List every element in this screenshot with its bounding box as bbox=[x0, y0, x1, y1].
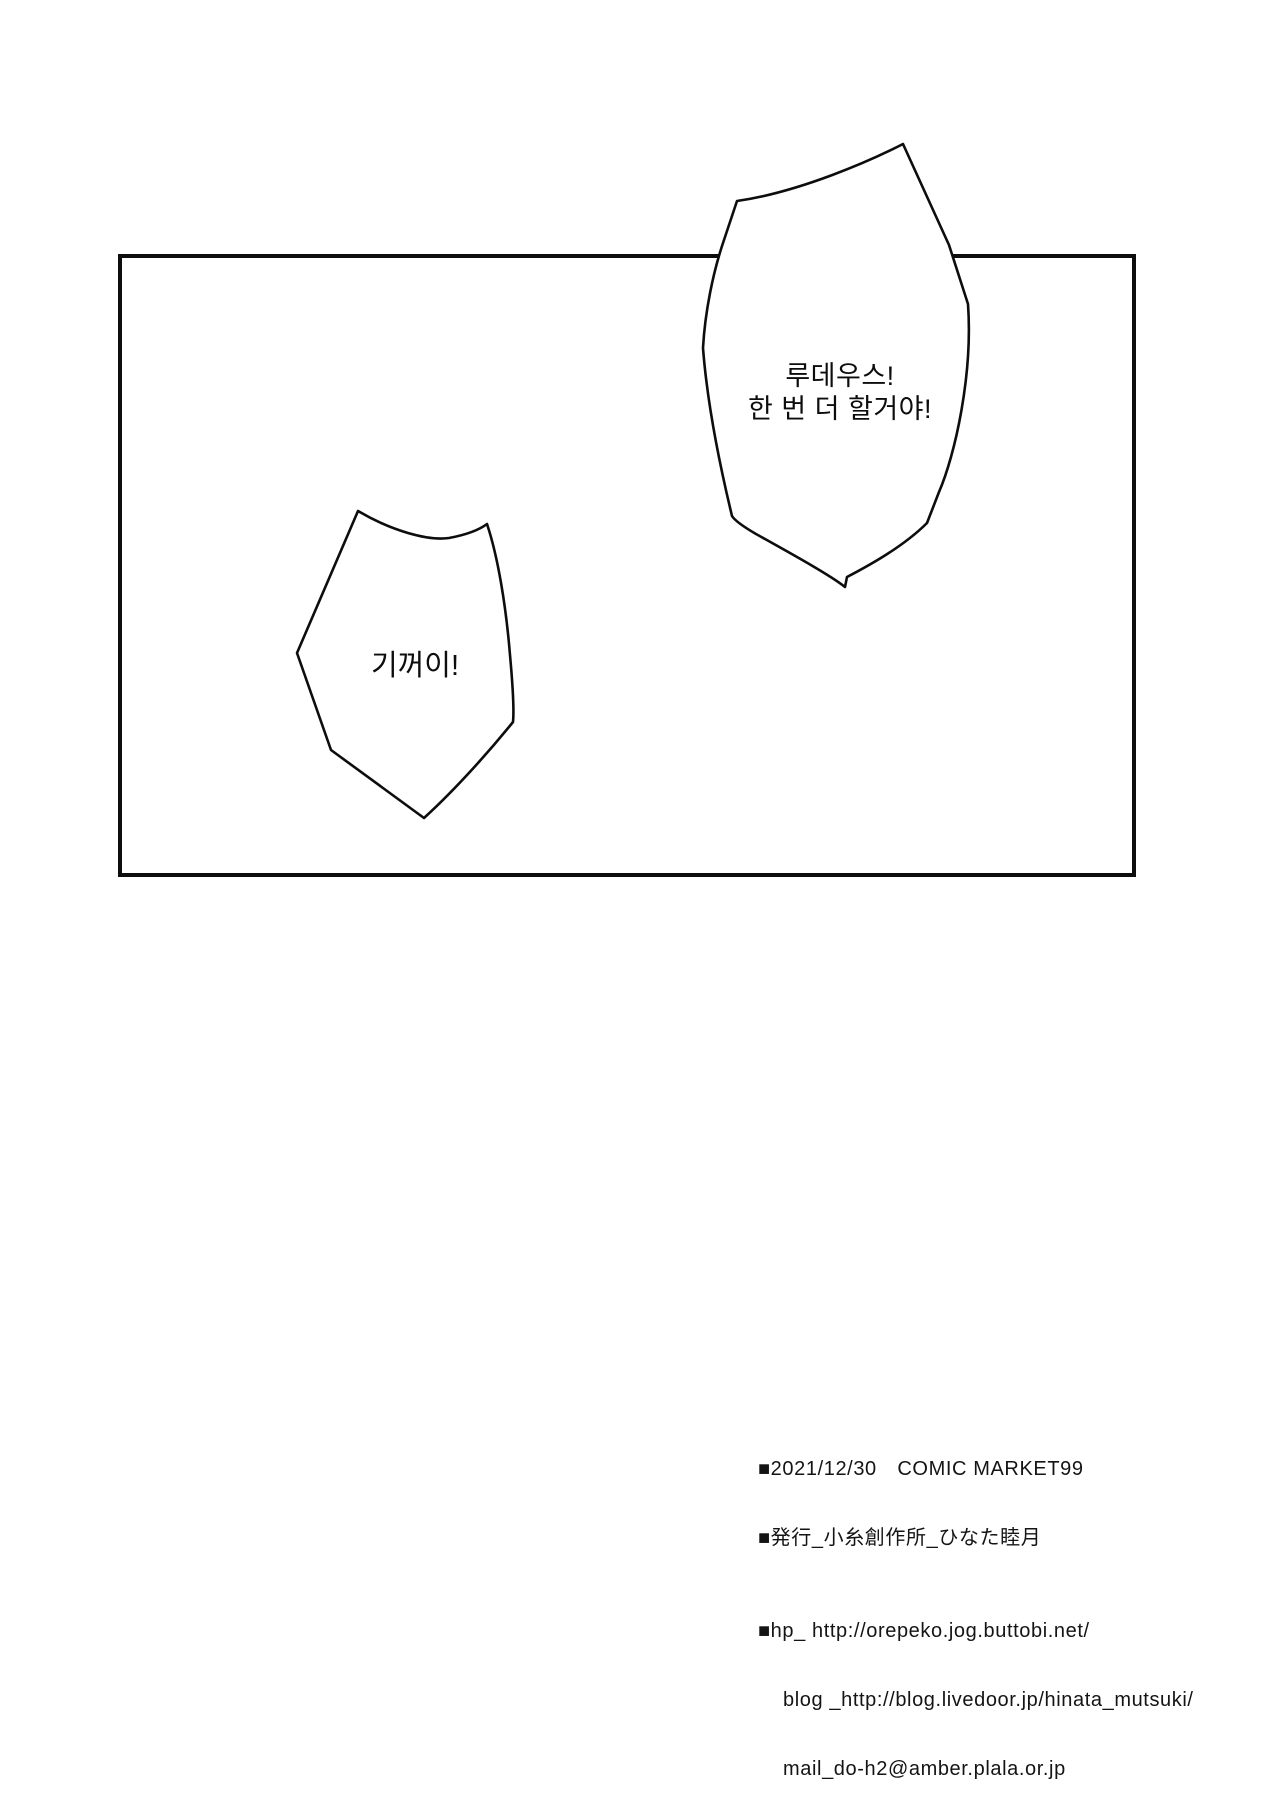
bubble-large-line-2: 한 번 더 할거야! bbox=[690, 393, 990, 426]
speech-bubble-large-text: 루데우스! 한 번 더 할거야! bbox=[690, 360, 990, 426]
doujin-colophon-page: 루데우스! 한 번 더 할거야! 기꺼이! ■2021/12/30 COMIC … bbox=[0, 0, 1280, 1808]
speech-bubble-small-text: 기꺼이! bbox=[325, 650, 505, 682]
bubble-large-line-1: 루데우스! bbox=[690, 360, 990, 393]
credit-mail-address: mail_do-h2@amber.plala.or.jp bbox=[758, 1758, 1194, 1781]
credit-event-date: ■2021/12/30 COMIC MARKET99 bbox=[758, 1458, 1194, 1481]
bubble-small-line-1: 기꺼이! bbox=[325, 650, 505, 682]
credit-blog-url: blog _http://blog.livedoor.jp/hinata_mut… bbox=[758, 1689, 1194, 1712]
comic-panel-frame bbox=[118, 254, 1136, 877]
colophon-credits-block: ■2021/12/30 COMIC MARKET99 ■発行_小糸創作所_ひなた… bbox=[758, 1412, 1194, 1808]
credit-publisher: ■発行_小糸創作所_ひなた睦月 bbox=[758, 1527, 1194, 1550]
credit-hp-url: ■hp_ http://orepeko.jog.buttobi.net/ bbox=[758, 1620, 1194, 1643]
